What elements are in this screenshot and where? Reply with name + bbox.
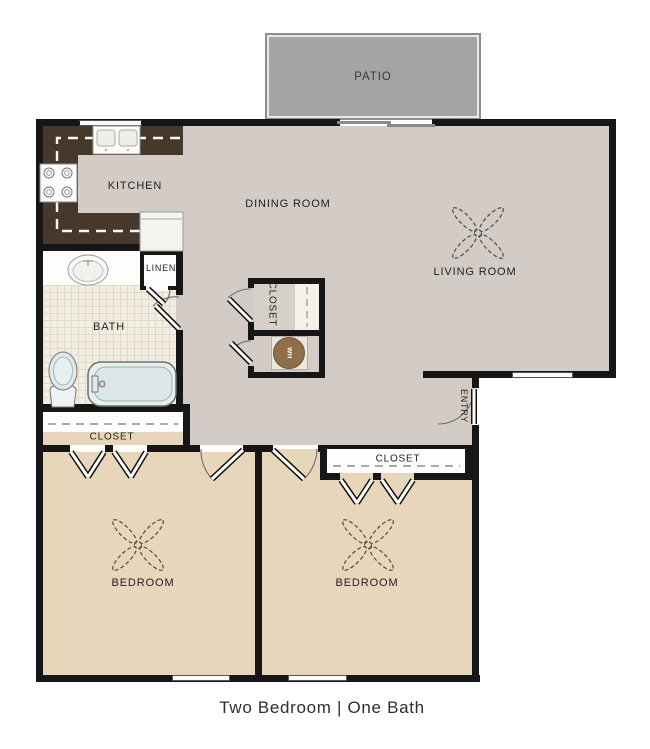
wall-between-bedrooms <box>255 445 262 682</box>
sliding-door-panel-b <box>387 124 435 127</box>
wall-hallcloset-right <box>319 278 325 378</box>
bedroom-left-window <box>172 675 230 681</box>
wall-bed1-top-d <box>243 445 262 452</box>
bedroom-right-floor <box>262 449 472 675</box>
entry-label: ENTRY <box>459 389 469 423</box>
bedroom-right-closet-label: CLOSET <box>376 454 421 465</box>
wall-left <box>36 119 43 682</box>
wall-hallcloset-bottom <box>248 372 325 378</box>
hall-closet-shelf <box>295 284 319 330</box>
wall-hallcloset-stub-a <box>248 278 254 288</box>
sliding-door-panel-a <box>337 121 391 124</box>
hall-closet-label: CLOSET <box>267 282 278 327</box>
bedroom-left-floor <box>43 452 255 675</box>
wall-bed1-top-c <box>147 445 200 452</box>
wall-bath-right-upper <box>176 251 183 295</box>
wall-bed1-top-a <box>36 445 70 452</box>
floor-plan: PATIO KITCHEN DINING ROOM LIVING ROOM BA… <box>0 0 650 749</box>
kitchen-counter-bottom <box>43 213 183 244</box>
wall-entry-upper <box>472 371 479 388</box>
dining-room-label: DINING ROOM <box>245 198 330 210</box>
wall-hallcloset-divider <box>248 330 325 336</box>
wall-bed2-top-a <box>262 445 273 452</box>
kitchen-label: KITCHEN <box>108 180 162 192</box>
bedroom-right-window <box>288 675 347 681</box>
plan-caption: Two Bedroom | One Bath <box>219 698 425 718</box>
bedroom-left-closet-label: CLOSET <box>90 432 135 443</box>
wall-top-right <box>432 119 616 126</box>
wall-hallcloset-top <box>248 278 325 284</box>
wall-bed1-top-b <box>105 445 113 452</box>
wall-hallcloset-stub-c <box>248 366 254 378</box>
living-room-label: LIVING ROOM <box>433 266 516 278</box>
wall-bath-bottom <box>36 404 190 412</box>
linen-closet-label: LINEN <box>146 263 176 273</box>
bath-label: BATH <box>93 321 125 333</box>
bedroom-left-label: BEDROOM <box>112 577 175 589</box>
bath-tile-floor <box>43 285 176 404</box>
wall-bath-right-lower <box>176 330 183 411</box>
wall-hallcloset-stub-b <box>248 322 254 340</box>
hallway-floor <box>183 371 472 445</box>
patio-label: PATIO <box>354 71 391 83</box>
bedroom-left-closet-interior <box>43 411 183 432</box>
wall-right <box>609 119 616 378</box>
wall-bed2-closet-top <box>327 445 472 449</box>
linen-door-opening <box>146 285 168 291</box>
living-room-window <box>512 372 573 378</box>
wall-bed2-closet-front-b <box>373 473 381 480</box>
kitchen-window <box>78 120 143 126</box>
water-heater-label: WH <box>286 347 293 358</box>
wall-kitchen-bath <box>36 244 183 251</box>
wall-bed2-closet-front-c <box>414 473 472 480</box>
wall-entry-lower <box>472 425 479 682</box>
wall-bed2-closet-front-a <box>320 473 340 480</box>
bedroom-right-label: BEDROOM <box>336 577 399 589</box>
